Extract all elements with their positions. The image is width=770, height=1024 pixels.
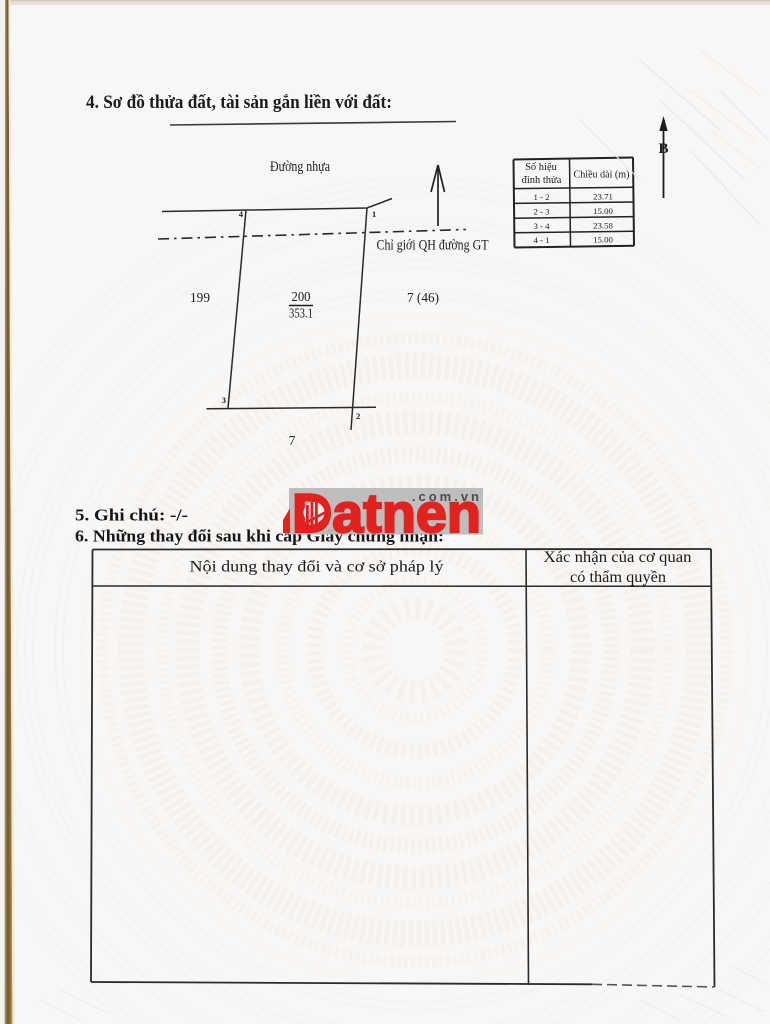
svg-text:có thẩm quyền: có thẩm quyền xyxy=(570,569,666,586)
svg-text:Chỉ giới QH đường GT: Chỉ giới QH đường GT xyxy=(377,238,489,254)
svg-text:2: 2 xyxy=(356,411,360,421)
svg-text:Chiều dài (m): Chiều dài (m) xyxy=(574,170,630,181)
svg-text:1 - 2: 1 - 2 xyxy=(533,192,549,202)
svg-text:đỉnh thửa: đỉnh thửa xyxy=(522,175,562,186)
svg-text:23.58: 23.58 xyxy=(593,221,613,231)
svg-text:1: 1 xyxy=(372,209,376,219)
svg-text:5. Ghi chú: -/-: 5. Ghi chú: -/- xyxy=(75,506,188,525)
svg-text:15.00: 15.00 xyxy=(593,206,613,216)
svg-text:15.00: 15.00 xyxy=(593,235,613,245)
svg-text:4. Sơ đồ thửa đất, tài sản gắn: 4. Sơ đồ thửa đất, tài sản gắn liền với … xyxy=(86,92,392,113)
svg-text:200: 200 xyxy=(292,289,311,304)
svg-text:3: 3 xyxy=(222,395,226,405)
svg-text:199: 199 xyxy=(190,290,210,305)
svg-text:B: B xyxy=(658,141,668,157)
svg-text:Đường nhựa: Đường nhựa xyxy=(270,159,330,175)
svg-text:353.1: 353.1 xyxy=(289,306,313,321)
svg-text:4 - 1: 4 - 1 xyxy=(533,235,549,245)
svg-text:Số hiệu: Số hiệu xyxy=(525,162,558,173)
svg-text:2 - 3: 2 - 3 xyxy=(533,207,550,217)
svg-text:Xác nhận của cơ quan: Xác nhận của cơ quan xyxy=(544,549,692,566)
svg-text:23.71: 23.71 xyxy=(593,192,613,202)
svg-text:7 (46): 7 (46) xyxy=(407,290,439,305)
svg-text:3 - 4: 3 - 4 xyxy=(533,221,550,231)
svg-text:7: 7 xyxy=(289,433,296,448)
svg-text:Nội dung thay đổi và cơ sở phá: Nội dung thay đổi và cơ sở pháp lý xyxy=(190,559,444,576)
